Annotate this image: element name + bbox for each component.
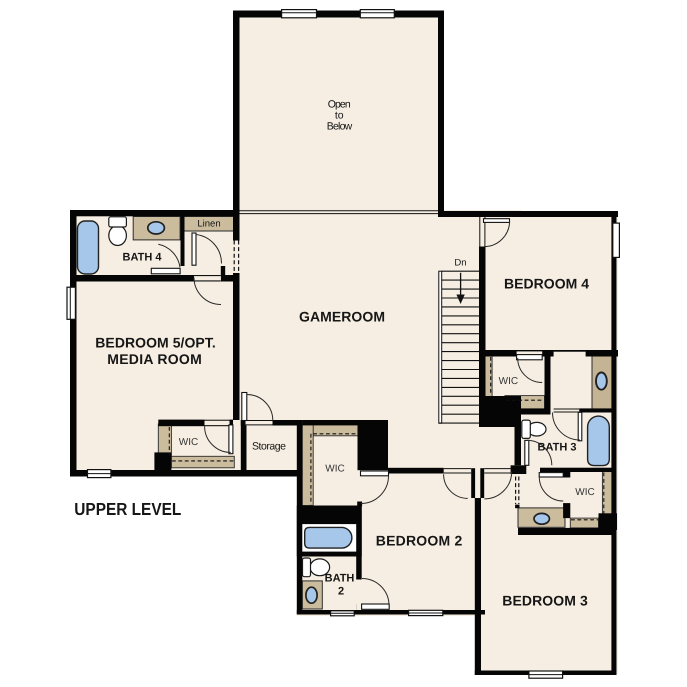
svg-text:BEDROOM 3: BEDROOM 3: [502, 592, 588, 608]
svg-text:WIC: WIC: [575, 487, 594, 498]
svg-text:BATH 3: BATH 3: [538, 441, 577, 453]
svg-text:BEDROOM 5/OPT.: BEDROOM 5/OPT.: [95, 334, 216, 350]
svg-text:BEDROOM 4: BEDROOM 4: [504, 275, 589, 291]
svg-text:Storage: Storage: [252, 440, 286, 452]
svg-text:WIC: WIC: [325, 463, 344, 474]
svg-text:Dn: Dn: [454, 258, 466, 269]
svg-text:BATH 4: BATH 4: [123, 251, 163, 263]
svg-text:BEDROOM 2: BEDROOM 2: [376, 532, 463, 548]
svg-text:WIC: WIC: [499, 376, 518, 387]
svg-text:UPPER LEVEL: UPPER LEVEL: [74, 499, 181, 519]
svg-text:2: 2: [338, 585, 344, 597]
svg-text:WIC: WIC: [179, 437, 198, 448]
svg-text:Linen: Linen: [197, 219, 220, 230]
svg-text:GAMEROOM: GAMEROOM: [299, 308, 385, 324]
svg-text:Below: Below: [327, 120, 353, 132]
svg-text:BATH: BATH: [325, 572, 355, 584]
svg-text:MEDIA ROOM: MEDIA ROOM: [107, 351, 202, 367]
